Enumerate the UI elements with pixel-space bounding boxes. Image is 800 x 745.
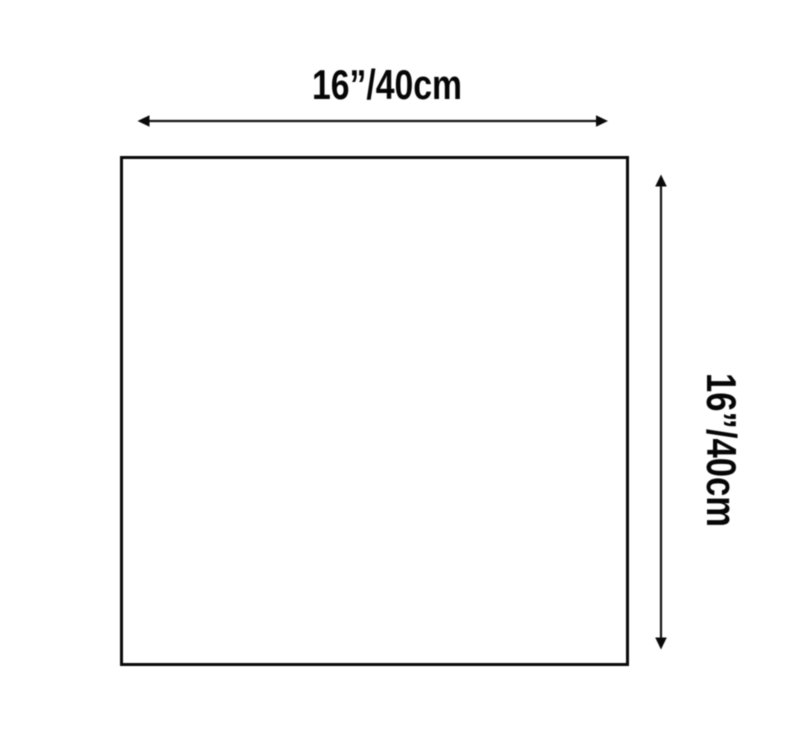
svg-text:16”/40cm: 16”/40cm [312,61,462,108]
svg-text:16”/40cm: 16”/40cm [698,373,745,527]
